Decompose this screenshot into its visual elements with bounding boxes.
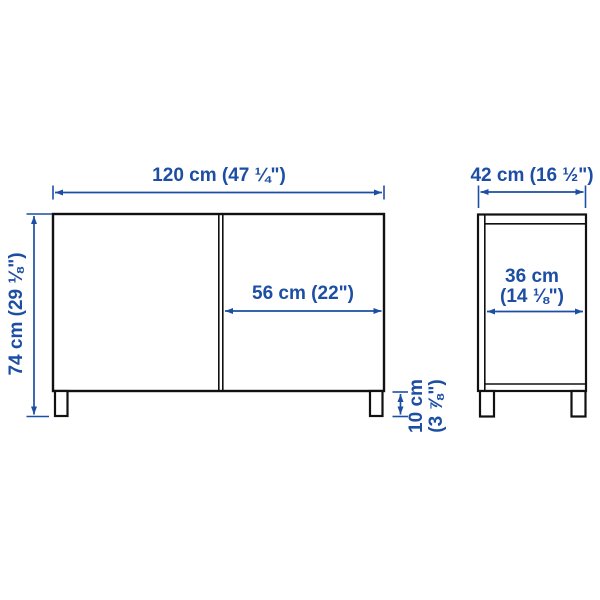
front-view — [53, 214, 384, 416]
product-dimension-illustration: 120 cm (47 ¼") 74 cm (29 ⅛") 56 cm (22")… — [0, 0, 600, 600]
side-view — [478, 215, 586, 417]
front-height-dimension — [27, 214, 53, 417]
side-inner-depth-label: 36 cm (14 ⅛") — [500, 267, 564, 307]
front-width-label: 120 cm (47 ¼") — [152, 166, 286, 186]
leg-height-label: 10 cm (3 ⅞") — [407, 379, 447, 433]
side-depth-label: 42 cm (16 ½") — [470, 166, 593, 186]
front-height-label: 74 cm (29 ⅛") — [7, 252, 27, 375]
side-left-leg — [480, 391, 494, 417]
front-right-leg — [370, 391, 383, 416]
door-width-label: 56 cm (22") — [252, 284, 354, 304]
side-right-leg — [572, 391, 586, 417]
leg-height-label-line2: (3 ⅞") — [427, 379, 447, 433]
side-inner-depth-label-line1: 36 cm — [500, 267, 564, 287]
side-depth-dimension — [479, 186, 586, 209]
front-left-leg — [55, 391, 68, 416]
side-inner-depth-label-line2: (14 ⅛") — [500, 287, 564, 307]
front-width-dimension — [53, 186, 384, 200]
leg-height-label-line1: 10 cm — [407, 379, 427, 433]
